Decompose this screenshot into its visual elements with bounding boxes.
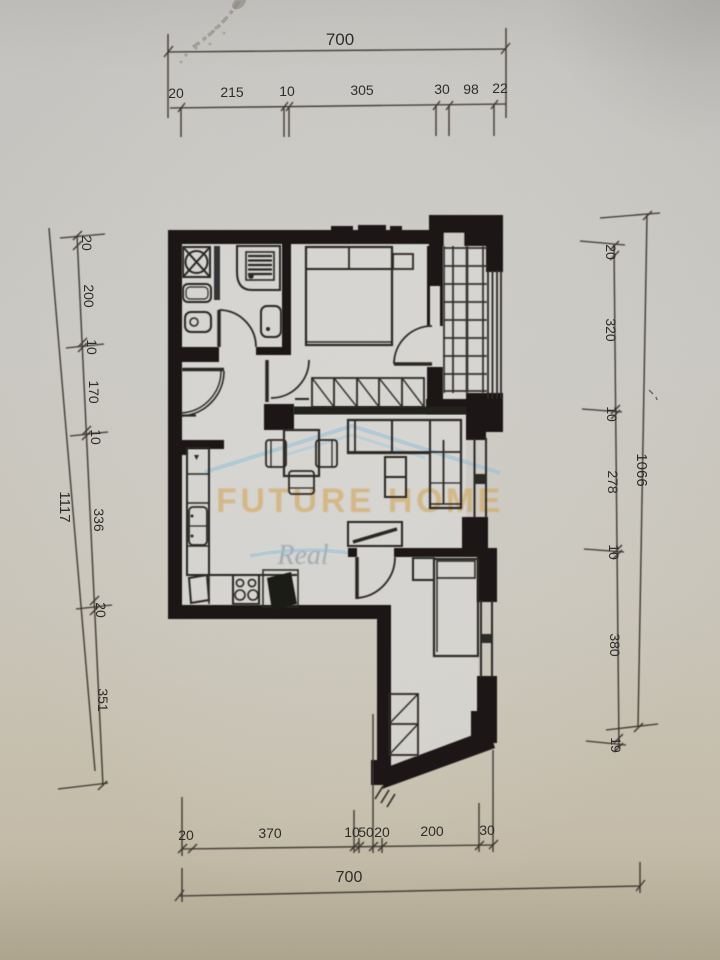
svg-text:336: 336 <box>91 508 107 532</box>
svg-text:22: 22 <box>492 80 508 96</box>
svg-text:20: 20 <box>93 602 109 618</box>
svg-text:20: 20 <box>178 827 194 843</box>
svg-text:98: 98 <box>463 81 479 97</box>
svg-text:700: 700 <box>336 869 363 886</box>
svg-text:700: 700 <box>326 30 354 49</box>
svg-text:278: 278 <box>605 470 621 494</box>
svg-text:30: 30 <box>434 81 450 97</box>
svg-text:30: 30 <box>479 822 495 838</box>
svg-text:19: 19 <box>608 737 624 753</box>
svg-text:380: 380 <box>607 633 623 657</box>
svg-text:200: 200 <box>81 284 97 308</box>
svg-text:305: 305 <box>350 82 374 98</box>
svg-text:170: 170 <box>86 380 102 404</box>
svg-text:10: 10 <box>279 83 295 99</box>
svg-text:370: 370 <box>258 825 282 841</box>
svg-text:215: 215 <box>220 84 244 100</box>
svg-text:1066: 1066 <box>633 453 650 486</box>
svg-text:10: 10 <box>84 339 100 355</box>
svg-text:10: 10 <box>88 429 104 445</box>
svg-text:50: 50 <box>358 824 374 840</box>
svg-text:20: 20 <box>374 824 390 840</box>
svg-text:10: 10 <box>604 406 620 422</box>
svg-text:320: 320 <box>603 318 619 342</box>
svg-text:1117: 1117 <box>56 491 73 522</box>
svg-text:20: 20 <box>603 244 619 260</box>
svg-text:351: 351 <box>95 688 111 712</box>
svg-text:20: 20 <box>168 85 184 101</box>
svg-text:10: 10 <box>606 544 622 560</box>
svg-text:20: 20 <box>79 235 95 251</box>
svg-text:Real: Real <box>276 540 329 571</box>
svg-text:200: 200 <box>420 823 444 839</box>
